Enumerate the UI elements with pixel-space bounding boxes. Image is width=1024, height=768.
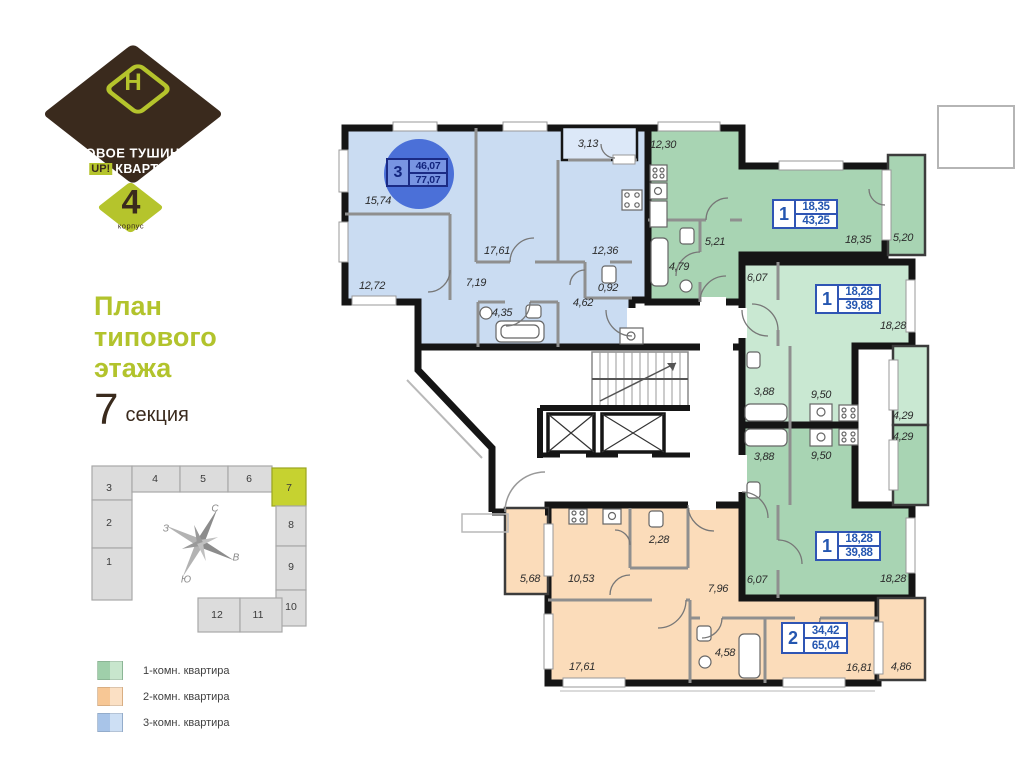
entrance-door-arc — [505, 472, 545, 512]
brand-logo-letter: Н — [124, 69, 141, 97]
area-label: 4,29 — [893, 410, 913, 422]
section-label: секция — [125, 404, 188, 427]
area-label: 17,61 — [484, 245, 510, 257]
minimap-num-7: 7 — [286, 482, 292, 494]
area-label: 15,74 — [365, 195, 391, 207]
badge-rooms-count: 2 — [783, 624, 805, 652]
sink-icon — [699, 656, 711, 668]
area-label: 18,28 — [880, 573, 906, 585]
minimap-num-11: 11 — [253, 609, 264, 621]
floor-plan-page: Н НОВОЕ ТУШИНО UP! КВАРТАЛ 4 корпус План… — [0, 0, 1024, 768]
area-label: 9,50 — [811, 389, 831, 401]
badge-living-area: 18,28 — [839, 286, 879, 300]
area-label: 12,30 — [650, 139, 676, 151]
compass-north-label: С — [211, 504, 218, 515]
minimap-num-10: 10 — [285, 601, 297, 613]
legend-swatch-1room — [97, 661, 123, 680]
stove-icon — [622, 190, 642, 210]
badge-living-area: 46,07 — [410, 160, 446, 174]
neighbor-balcony-outline — [938, 106, 1014, 168]
area-label: 9,50 — [811, 450, 831, 462]
counter-icon — [650, 201, 667, 227]
toilet-icon — [680, 228, 694, 244]
badge-rooms-count: 1 — [817, 286, 839, 312]
toilet-icon — [747, 482, 760, 498]
apartment-1room-c-badge[interactable]: 1 18,28 39,88 — [815, 531, 881, 561]
minimap-num-1: 1 — [106, 556, 112, 568]
stove-icon — [569, 509, 587, 524]
bathtub-icon — [745, 429, 787, 446]
page-title: План типового этажа — [94, 291, 217, 384]
toilet-icon — [697, 626, 711, 641]
entrance-porch — [462, 514, 508, 532]
legend-label-2room: 2-комн. квартира — [143, 691, 230, 703]
badge-living-area: 18,28 — [839, 533, 879, 547]
area-label: 18,28 — [880, 320, 906, 332]
area-label: 16,81 — [846, 662, 872, 674]
compass-east-label: В — [233, 553, 240, 564]
brand-name-line2: UP! КВАРТАЛ — [89, 162, 177, 176]
area-label: 4,29 — [893, 431, 913, 443]
legend-item-2room: 2-комн. квартира — [97, 687, 230, 706]
badge-rooms-count: 1 — [774, 201, 796, 227]
area-label: 18,35 — [845, 234, 871, 246]
area-label: 5,68 — [520, 573, 540, 585]
legend-label-1room: 1-комн. квартира — [143, 665, 230, 677]
area-label: 4,58 — [715, 647, 735, 659]
badge-total-area: 39,88 — [839, 547, 879, 559]
area-label: 3,13 — [578, 138, 598, 150]
area-label: 6,07 — [747, 574, 767, 586]
compass-rose — [149, 492, 251, 594]
legend-swatch-3room — [97, 713, 123, 732]
porch-line — [407, 380, 482, 458]
toilet-icon — [649, 511, 663, 527]
apartment-2room-badge[interactable]: 2 34,42 65,04 — [781, 622, 848, 654]
area-label: 12,72 — [359, 280, 385, 292]
toilet-icon — [747, 352, 760, 368]
building-number-label: корпус — [118, 222, 144, 231]
area-label: 7,96 — [708, 583, 728, 595]
minimap-num-12: 12 — [211, 609, 223, 621]
compass-west-label: З — [163, 524, 169, 535]
bathtub-icon — [745, 404, 787, 421]
badge-total-area: 43,25 — [796, 215, 836, 227]
bathtub-icon — [739, 634, 760, 678]
legend-label-3room: 3-комн. квартира — [143, 717, 230, 729]
area-label: 4,62 — [573, 297, 593, 309]
section-subtitle: 7 секция — [94, 388, 189, 432]
apartment-1room-a-badge[interactable]: 1 18,35 43,25 — [772, 199, 838, 229]
area-label: 7,19 — [466, 277, 486, 289]
minimap-num-5: 5 — [200, 473, 206, 485]
toilet-icon — [602, 266, 616, 283]
elevator-shafts — [540, 408, 690, 458]
brand-up-label: UP! — [89, 163, 112, 175]
sink-icon — [680, 280, 692, 292]
legend-item-1room: 1-комн. квартира — [97, 661, 230, 680]
bathtub-icon — [651, 238, 668, 286]
badge-rooms-count: 1 — [817, 533, 839, 559]
area-label: 5,21 — [705, 236, 725, 248]
minimap-num-8: 8 — [288, 519, 294, 531]
minimap-num-3: 3 — [106, 482, 112, 494]
area-label: 3,88 — [754, 451, 774, 463]
badge-total-area: 77,07 — [410, 174, 446, 186]
compass-south-label: Ю — [181, 575, 191, 586]
staircase — [592, 352, 688, 406]
legend-item-3room: 3-комн. квартира — [97, 713, 230, 732]
area-label: 2,28 — [649, 534, 669, 546]
area-label: 10,53 — [568, 573, 594, 585]
legend-swatch-2room — [97, 687, 123, 706]
sink-icon — [480, 307, 492, 319]
area-label: 4,35 — [492, 307, 512, 319]
minimap-num-9: 9 — [288, 561, 294, 573]
section-number: 7 — [94, 388, 118, 432]
building-number: 4 — [122, 184, 141, 223]
badge-living-area: 18,35 — [796, 201, 836, 215]
area-label: 5,20 — [893, 232, 913, 244]
stove-icon — [650, 165, 667, 181]
stove-icon — [839, 405, 858, 421]
badge-total-area: 39,88 — [839, 300, 879, 312]
area-label: 4,79 — [669, 261, 689, 273]
minimap-num-4: 4 — [152, 473, 158, 485]
area-label: 4,86 — [891, 661, 911, 673]
stove-icon — [839, 429, 858, 445]
brand-name-line1: НОВОЕ ТУШИНО — [76, 146, 191, 161]
apartment-3room-badge[interactable]: 3 46,07 77,07 — [386, 158, 448, 187]
apartment-1room-b-badge[interactable]: 1 18,28 39,88 — [815, 284, 881, 314]
minimap-num-6: 6 — [246, 473, 252, 485]
badge-rooms-count: 3 — [388, 160, 410, 185]
minimap-num-2: 2 — [106, 517, 112, 529]
brand-kvartal-label: КВАРТАЛ — [115, 162, 177, 176]
area-label: 0,92 — [598, 282, 618, 294]
badge-total-area: 65,04 — [805, 639, 846, 652]
area-label: 17,61 — [569, 661, 595, 673]
badge-living-area: 34,42 — [805, 624, 846, 639]
area-label: 12,36 — [592, 245, 618, 257]
area-label: 6,07 — [747, 272, 767, 284]
area-label: 3,88 — [754, 386, 774, 398]
